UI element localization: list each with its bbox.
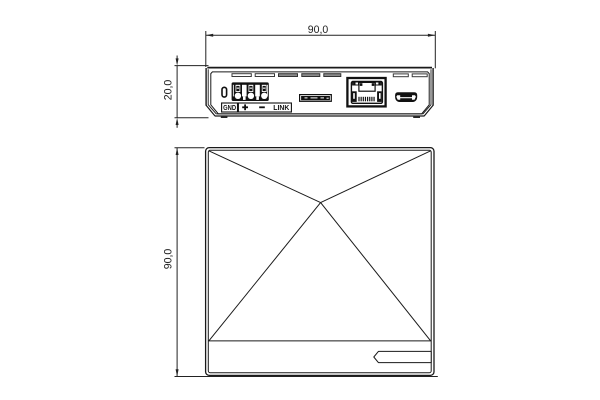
svg-text:LINK: LINK xyxy=(273,103,290,112)
svg-text:GND: GND xyxy=(223,103,236,112)
svg-text:20,0: 20,0 xyxy=(163,80,175,101)
svg-text:90,0: 90,0 xyxy=(308,24,329,36)
svg-text:90,0: 90,0 xyxy=(162,249,174,270)
